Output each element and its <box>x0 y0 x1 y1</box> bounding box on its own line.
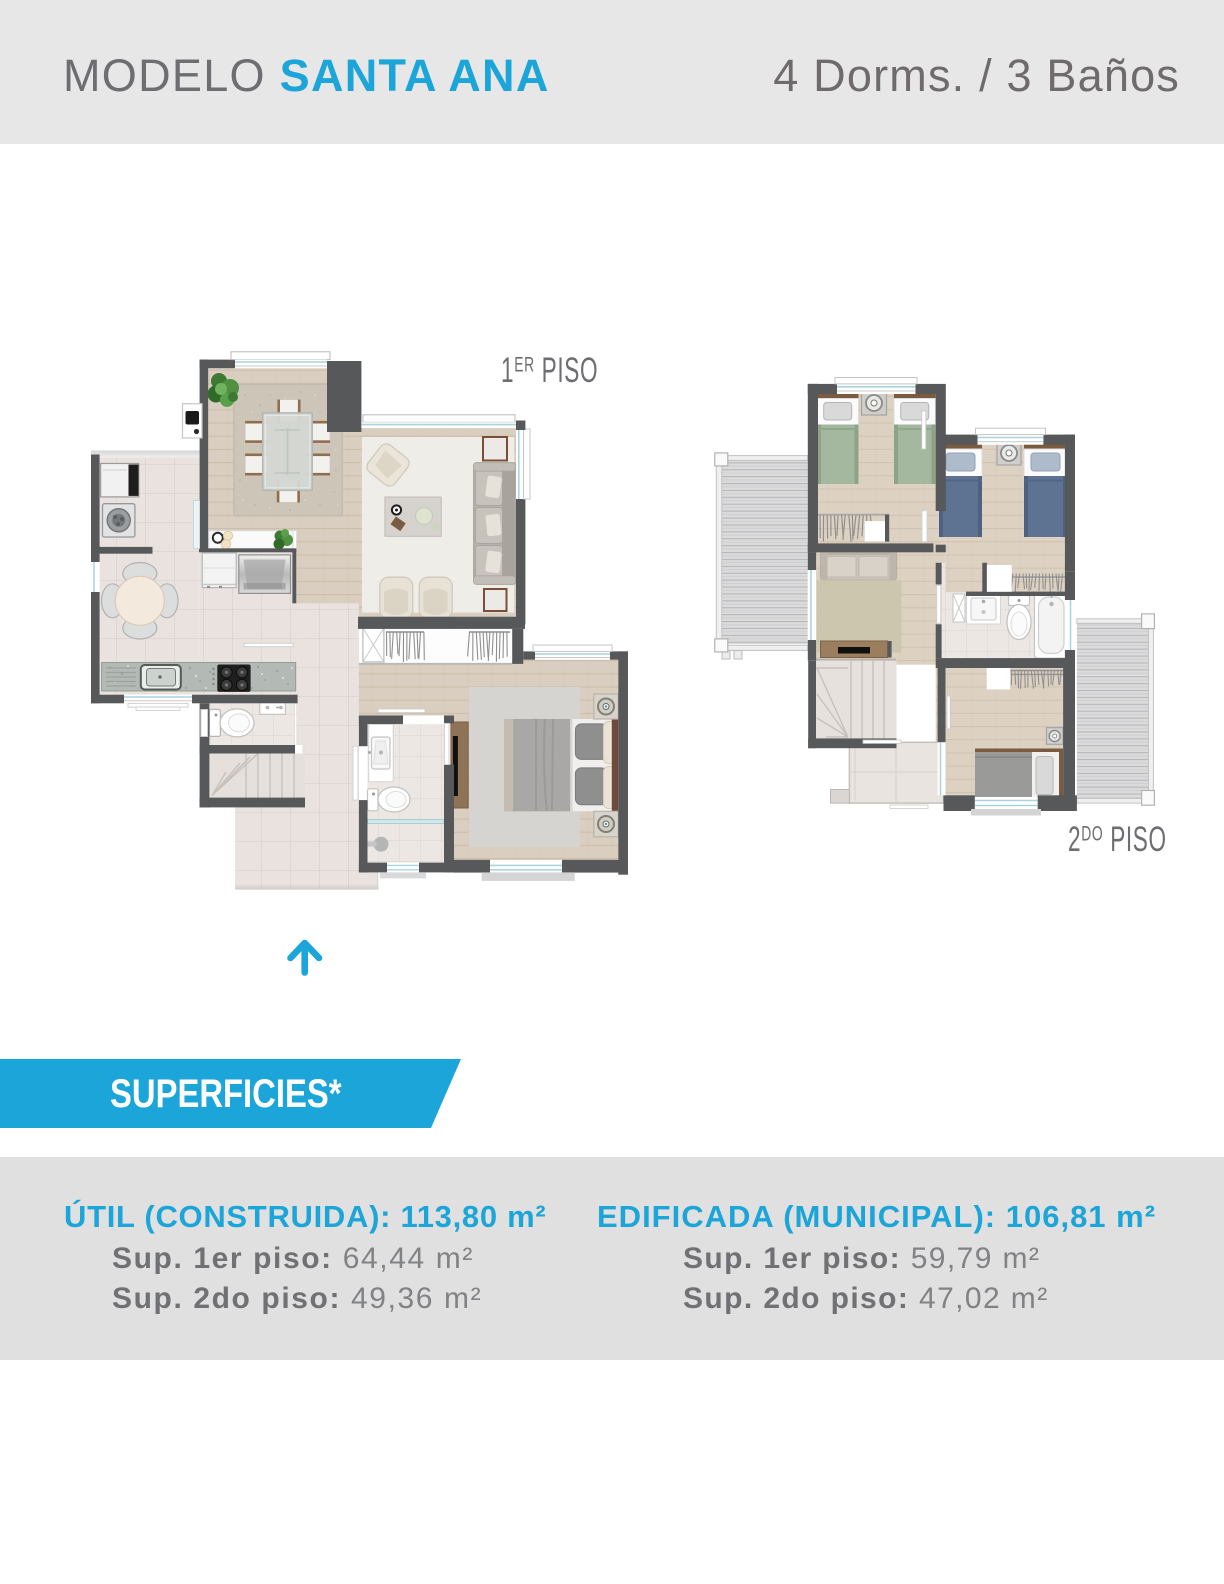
svg-text:2DO PISO: 2DO PISO <box>1068 820 1167 859</box>
svg-text:1ER PISO: 1ER PISO <box>501 351 598 390</box>
